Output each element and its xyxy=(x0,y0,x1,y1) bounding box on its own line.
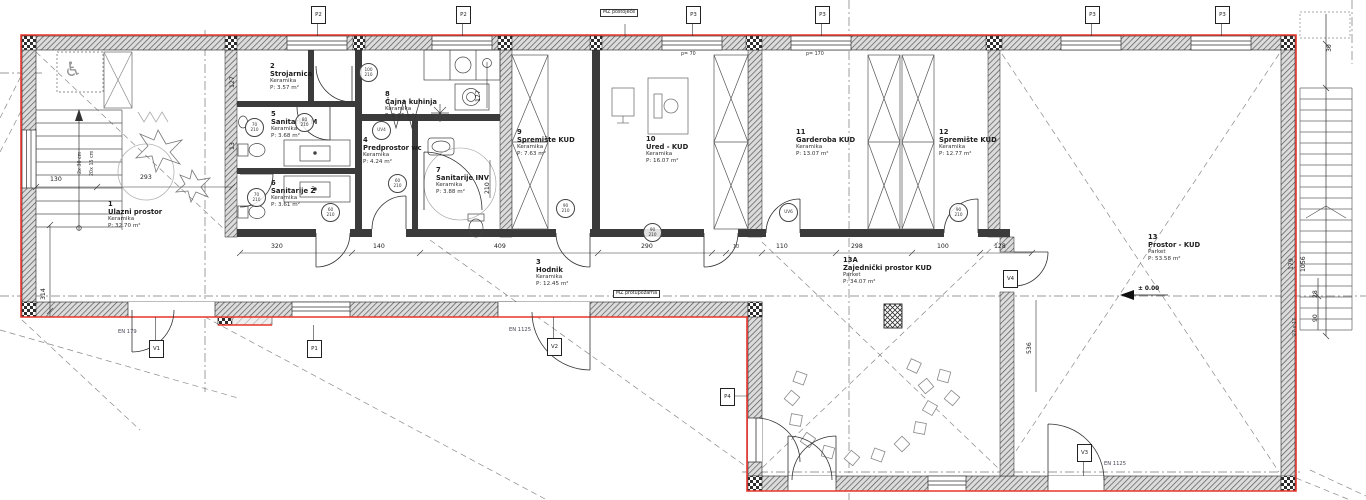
en1125-note: EN 1125 xyxy=(1104,461,1126,467)
room-label-1: 1 Ulazni prostor Keramika P: 32.70 m² xyxy=(108,200,162,229)
window-marker: P2 xyxy=(456,6,471,24)
window-marker: P3 xyxy=(1215,6,1230,24)
wall-type-note: MZ protupožarna xyxy=(613,290,660,298)
room-label-4: 4 Predprostor wc Keramika P: 4.24 m² xyxy=(363,136,422,165)
door-tag: 100 210 xyxy=(359,63,378,82)
room-label-13: 13 Prostor - KUD Parket P: 53.58 m² xyxy=(1148,233,1200,262)
room-number: 1 xyxy=(108,200,162,208)
door-tag: 70 210 xyxy=(247,188,266,207)
level-label: ± 0.00 xyxy=(1138,286,1159,293)
door-tag: 70 210 xyxy=(245,118,264,137)
room-name: Spremište KUD xyxy=(517,136,575,144)
room-label-2: 2 Strojarnica Keramika P: 3.57 m² xyxy=(270,62,312,91)
room-area: P: 3.57 m² xyxy=(270,85,312,92)
door-tag: UV6 xyxy=(779,203,798,222)
room-number: 2 xyxy=(270,62,312,70)
dim-label: 110 xyxy=(776,243,788,250)
door-tag: 90 210 xyxy=(643,223,662,242)
window-marker: P3 xyxy=(1085,6,1100,24)
room-number: 13A xyxy=(843,256,932,264)
room-area: P: 34.07 m² xyxy=(843,279,932,286)
room-area: P: 5.26 m² xyxy=(385,113,437,120)
door-tag: UV4 xyxy=(372,121,391,140)
columns xyxy=(22,36,1295,491)
wall-type-note: MZ postojeće xyxy=(600,9,638,17)
dim-label: 210 xyxy=(484,182,491,194)
office-desk xyxy=(612,78,688,134)
dim-label: 409 xyxy=(494,243,506,250)
room-material: Keramika xyxy=(363,152,422,159)
dim-label: 1056 xyxy=(1300,256,1307,272)
window-marker: P1 xyxy=(307,340,322,358)
dim-label: 100 xyxy=(937,243,949,250)
room-name: Ured - KUD xyxy=(646,143,688,151)
room-label-12: 12 Spremište KUD Keramika P: 12.77 m² xyxy=(939,128,997,157)
dim-label: 128 xyxy=(994,243,1006,250)
room-area: P: 16.07 m² xyxy=(646,158,688,165)
exterior-walls xyxy=(22,36,1295,491)
door-marker: V2 xyxy=(547,338,562,356)
room-label-7: 7 Sanitarije INV Keramika P: 3.88 m² xyxy=(436,166,489,195)
room-label-13a: 13A Zajednički prostor KUD Parket P: 34.… xyxy=(843,256,932,285)
room-area: P: 32.70 m² xyxy=(108,223,162,230)
room-name: Prostor - KUD xyxy=(1148,241,1200,249)
window-marker: P2 xyxy=(311,6,326,24)
marker-leaders xyxy=(156,22,1222,476)
room-material: Keramika xyxy=(939,144,997,151)
dim-label: 90 xyxy=(1312,314,1319,322)
stairs-exterior xyxy=(1300,14,1352,339)
room-number: 7 xyxy=(436,166,489,174)
floorplan-canvas: 1 Ulazni prostor Keramika P: 32.70 m² 2 … xyxy=(0,0,1366,500)
room-material: Keramika xyxy=(270,78,312,85)
room-number: 11 xyxy=(796,128,855,136)
room-name: Hodnik xyxy=(536,266,569,274)
room-material: Parket xyxy=(843,272,932,279)
room-label-11: 11 Garderoba KUD Keramika P: 13.07 m² xyxy=(796,128,855,157)
dim-label: 30 xyxy=(1326,44,1333,52)
parapet-label: p= 70 xyxy=(681,52,696,58)
stair-step-label: 2x 30 cm xyxy=(78,152,84,174)
room-number: 8 xyxy=(385,90,437,98)
dim-label: 314 xyxy=(40,288,47,300)
wheelchair-icon: ♿ xyxy=(64,58,82,82)
room-material: Keramika xyxy=(108,216,162,223)
dim-label: 130 xyxy=(50,176,62,183)
en179-note: EN 179 xyxy=(118,329,137,335)
room-name: Strojarnica xyxy=(270,70,312,78)
room-material: Keramika xyxy=(385,106,437,113)
door-marker: V3 xyxy=(1077,444,1092,462)
dim-label: 293 xyxy=(140,174,152,181)
room-name: Sanitarije Ž xyxy=(271,187,315,195)
room-area: P: 12.77 m² xyxy=(939,151,997,158)
stair-step-label: 20x 15 cm xyxy=(90,151,96,176)
room-area: P: 3.88 m² xyxy=(436,189,489,196)
room-area: P: 3.61 m² xyxy=(271,202,315,209)
room-material: Keramika xyxy=(271,195,315,202)
dim-label: 13 xyxy=(229,142,236,150)
room-area: P: 7.63 m² xyxy=(517,151,575,158)
room-area: P: 4.24 m² xyxy=(363,159,422,166)
dim-label: 28 xyxy=(1312,290,1319,298)
dim-label: 27 x 17 xyxy=(1293,318,1299,336)
room-label-3: 3 Hodnik Keramika P: 12.45 m² xyxy=(536,258,569,287)
dim-label: 179 xyxy=(1288,258,1295,270)
room-area: P: 13.07 m² xyxy=(796,151,855,158)
door-tag: 90 210 xyxy=(949,203,968,222)
room-name: Garderoba KUD xyxy=(796,136,855,144)
dim-label: 290 xyxy=(641,243,653,250)
door-marker: V4 xyxy=(1003,270,1018,288)
dim-label: 127 xyxy=(229,76,236,88)
dim-label: 10 xyxy=(733,245,739,251)
room-name: Ulazni prostor xyxy=(108,208,162,216)
windows xyxy=(22,36,1251,491)
door-tag: 60 210 xyxy=(321,203,340,222)
en1125-note: EN 1125 xyxy=(509,327,531,333)
door-tag: 60 210 xyxy=(388,174,407,193)
room-number: 12 xyxy=(939,128,997,136)
room-area: P: 12.45 m² xyxy=(536,281,569,288)
room-number: 3 xyxy=(536,258,569,266)
room-area: P: 3.68 m² xyxy=(271,133,317,140)
parapet-label: p= 170 xyxy=(806,52,824,58)
dim-label: 536 xyxy=(1026,342,1033,354)
room-number: 6 xyxy=(271,179,315,187)
window-marker: P4 xyxy=(720,388,735,406)
room-number: 10 xyxy=(646,135,688,143)
room-material: Keramika xyxy=(517,144,575,151)
room-material: Keramika xyxy=(536,274,569,281)
wardrobe-units xyxy=(512,55,934,229)
dim-label: 177 xyxy=(475,90,482,102)
dim-label: 298 xyxy=(851,243,863,250)
room-number: 4 xyxy=(363,136,422,144)
room-material: Keramika xyxy=(646,151,688,158)
room-material: Keramika xyxy=(796,144,855,151)
room-label-10: 10 Ured - KUD Keramika P: 16.07 m² xyxy=(646,135,688,164)
window-marker: P3 xyxy=(815,6,830,24)
plants-decor xyxy=(118,112,210,202)
room-number: 13 xyxy=(1148,233,1200,241)
room-label-9: 9 Spremište KUD Keramika P: 7.63 m² xyxy=(517,128,575,157)
room-name: Čajna kuhinja xyxy=(385,98,437,106)
dim-label: 320 xyxy=(271,243,283,250)
room-name: Predprostor wc xyxy=(363,144,422,152)
room-name: Sanitarije INV xyxy=(436,174,489,182)
room-name: Spremište KUD xyxy=(939,136,997,144)
room-label-8: 8 Čajna kuhinja Keramika P: 5.26 m² xyxy=(385,90,437,119)
room-number: 9 xyxy=(517,128,575,136)
door-tag: 80 210 xyxy=(295,113,314,132)
door-tag: 90 210 xyxy=(556,199,575,218)
window-marker: P3 xyxy=(686,6,701,24)
room-material: Parket xyxy=(1148,249,1200,256)
room-material: Keramika xyxy=(436,182,489,189)
room-label-6: 6 Sanitarije Ž Keramika P: 3.61 m² xyxy=(271,179,315,208)
chairs xyxy=(784,359,959,466)
room-area: P: 53.58 m² xyxy=(1148,256,1200,263)
room-name: Zajednički prostor KUD xyxy=(843,264,932,272)
dim-label: 140 xyxy=(373,243,385,250)
door-marker: V1 xyxy=(149,340,164,358)
red-outline xyxy=(21,35,1296,491)
